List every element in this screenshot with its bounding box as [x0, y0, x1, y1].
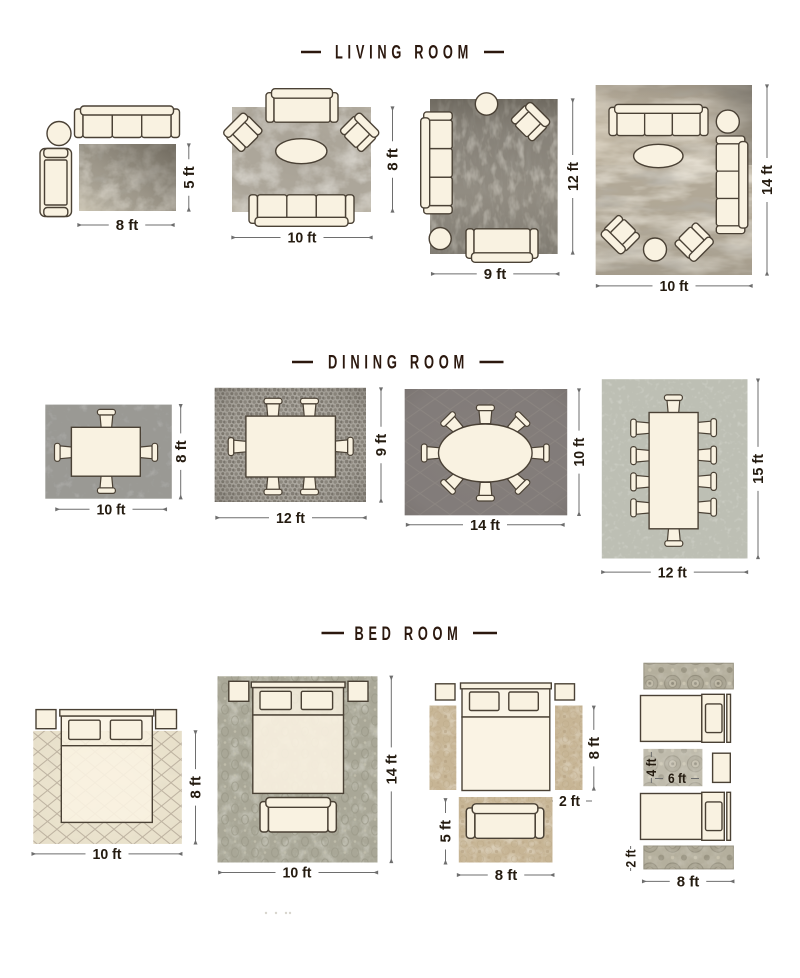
svg-text:10 ft: 10 ft: [93, 847, 122, 863]
svg-text:2 ft: 2 ft: [559, 794, 580, 810]
svg-text:14 ft: 14 ft: [760, 165, 776, 195]
svg-text:8 ft: 8 ft: [174, 440, 190, 463]
svg-text:5 ft: 5 ft: [439, 820, 455, 843]
svg-text:8 ft: 8 ft: [677, 875, 700, 891]
svg-text:4 ft: 4 ft: [644, 758, 659, 776]
svg-text:9 ft: 9 ft: [484, 267, 507, 283]
svg-text:10 ft: 10 ft: [660, 279, 689, 295]
svg-text:8 ft: 8 ft: [116, 218, 139, 234]
svg-text:2 ft: 2 ft: [623, 849, 638, 867]
svg-text:6 ft: 6 ft: [668, 771, 686, 786]
svg-text:10 ft: 10 ft: [283, 866, 312, 882]
svg-text:10 ft: 10 ft: [97, 503, 126, 519]
svg-text:12 ft: 12 ft: [276, 511, 305, 527]
svg-text:8 ft: 8 ft: [386, 148, 402, 171]
svg-text:9 ft: 9 ft: [374, 434, 390, 457]
svg-text:15 ft: 15 ft: [751, 454, 767, 484]
svg-text:14 ft: 14 ft: [385, 754, 401, 784]
svg-text:LIVING ROOM: LIVING ROOM: [335, 42, 473, 63]
svg-text:5 ft: 5 ft: [182, 166, 198, 189]
svg-text:12 ft: 12 ft: [566, 162, 582, 191]
svg-text:DINING ROOM: DINING ROOM: [328, 353, 469, 374]
svg-text:10 ft: 10 ft: [572, 437, 588, 466]
svg-text:BED ROOM: BED ROOM: [355, 624, 463, 645]
svg-text:8 ft: 8 ft: [189, 776, 205, 799]
svg-text:12 ft: 12 ft: [658, 565, 687, 581]
svg-text:8 ft: 8 ft: [495, 868, 518, 884]
svg-text:10 ft: 10 ft: [288, 231, 317, 247]
svg-text:8 ft: 8 ft: [587, 737, 603, 760]
svg-text:14 ft: 14 ft: [470, 518, 500, 534]
